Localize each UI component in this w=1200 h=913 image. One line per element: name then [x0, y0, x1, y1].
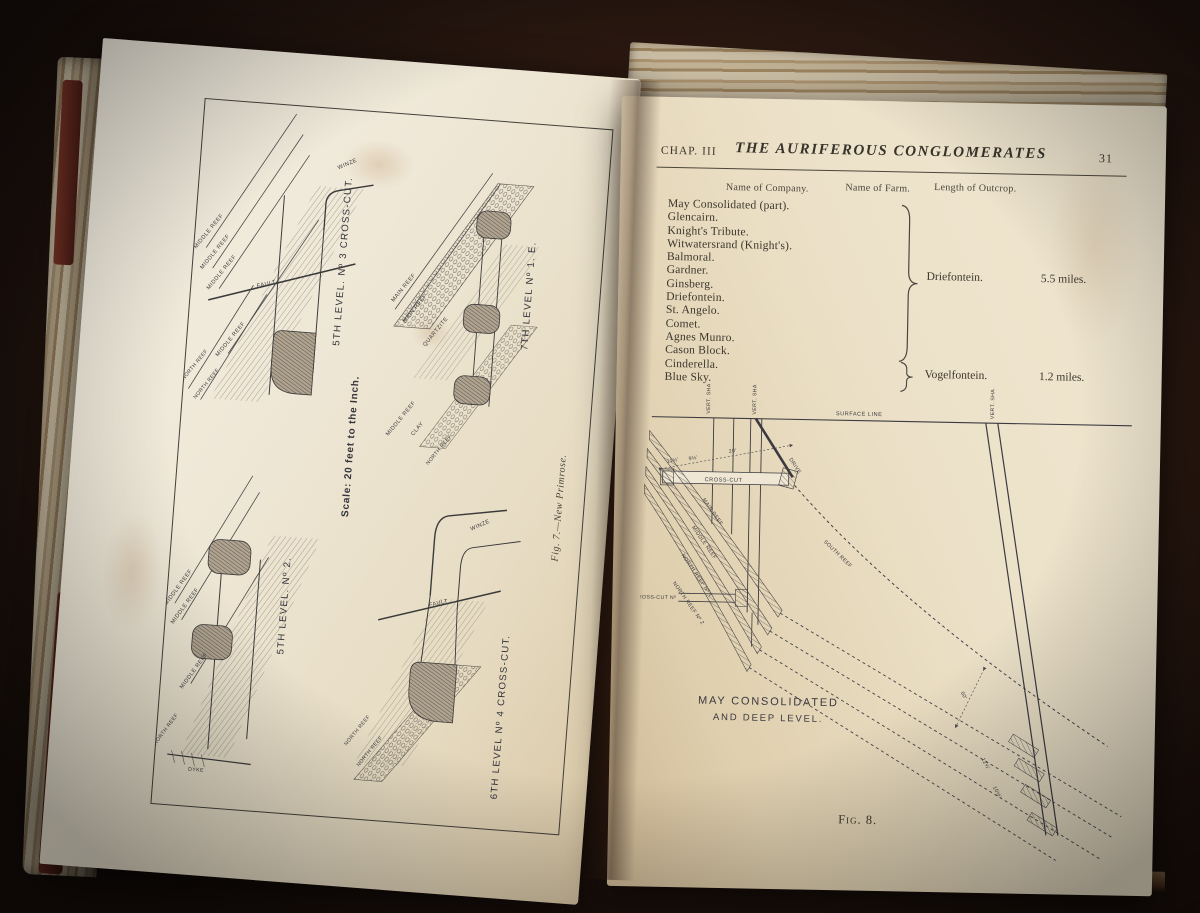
farm-name-2: Vogelfontein.: [925, 368, 988, 382]
measure-12: 12½': [980, 757, 992, 771]
figure8-title-line2: AND DEEP LEVEL.: [713, 712, 823, 725]
measure-9: 9½': [688, 454, 698, 463]
label-surface-line: SURFACE LINE: [836, 411, 883, 418]
scale-note: Scale: 20 feet to the Inch.: [340, 375, 362, 517]
stain: [98, 510, 167, 634]
running-head-title: THE AURIFEROUS CONGLOMERATES: [681, 139, 1101, 164]
label-vert-shaft-1: VERT. SHAFT: [706, 382, 713, 413]
label-winze: WINZE: [337, 158, 358, 172]
label-main-reef: MAIN REEF: [391, 272, 418, 303]
photo-of-open-book: { "left_page": { "figure_caption": "Fig.…: [0, 0, 1200, 913]
label-cross-cut: CROSS-CUT: [705, 477, 743, 484]
outcrop-length-2: 1.2 miles.: [1017, 370, 1107, 385]
measure-10: 10½': [991, 785, 1003, 799]
figure7-drawing: MIDDLE REEF MIDDLE REEF MIDDLE REEF MIDD…: [152, 99, 610, 831]
label-vert-shaft-2: VERT. SHAFT: [752, 382, 759, 414]
label-winze: WINZE: [470, 519, 491, 533]
label-dyke: DYKE: [188, 767, 204, 774]
section-6th-level-no4: FAULT WINZE NORTH REEF NORTH REEF 6TH LE…: [340, 499, 523, 800]
section-5th-level-no3: MIDDLE REEF MIDDLE REEF MIDDLE REEF MIDD…: [179, 107, 378, 413]
label-cross-cut-no: CROSS-CUT Nº: [635, 594, 676, 601]
caption-d4: 6TH LEVEL Nº 4 CROSS-CUT.: [489, 634, 513, 800]
measure-60: 60': [959, 691, 968, 701]
head-rule: [657, 167, 1127, 177]
label-vert-shaft-3: VERT. SHAFT: [990, 382, 997, 419]
figure8-caption: Fig. 8.: [838, 812, 877, 828]
left-page: MIDDLE REEF MIDDLE REEF MIDDLE REEF MIDD…: [39, 38, 641, 905]
section-5th-level-no2: MIDDLE REEF MIDDLE REEF MIDDLE REEF NORT…: [152, 470, 325, 782]
label-clay: CLAY: [410, 421, 425, 437]
farm-name-1: Driefontein.: [926, 270, 983, 284]
label-middle-reef: MIDDLE REEF: [179, 652, 209, 690]
label-north-reef: NORTH REEF: [181, 349, 210, 382]
company-list: May Consolidated (part). Glencairn. Knig…: [664, 197, 793, 386]
label-south-reef: SOUTH REEF: [822, 539, 853, 569]
label-north-reef-1: NORTH REEF Nº 1: [680, 553, 714, 598]
page-number: 31: [1099, 151, 1113, 166]
figure7-plate-frame: MIDDLE REEF MIDDLE REEF MIDDLE REEF MIDD…: [150, 98, 613, 835]
label-north-reef-2: NORTH REEF Nº 2: [671, 581, 705, 626]
right-page: CHAP. III THE AURIFEROUS CONGLOMERATES 3…: [607, 96, 1167, 896]
brace-group-1: [897, 203, 922, 363]
measure-20: 20': [728, 448, 737, 455]
figure8-title-line1: MAY CONSOLIDATED: [698, 695, 839, 710]
label-north-reef: NORTH REEF: [153, 712, 180, 746]
figure8-drawing: SURFACE LINE VERT. SHAFT VERT. SHAFT VER…: [635, 382, 1139, 861]
outcrop-length-1: 5.5 miles.: [1018, 272, 1108, 287]
section-7th-level-no1e: MAIN REEF MAIN REEF QUARTZITE MIDDLE REE…: [378, 166, 549, 474]
